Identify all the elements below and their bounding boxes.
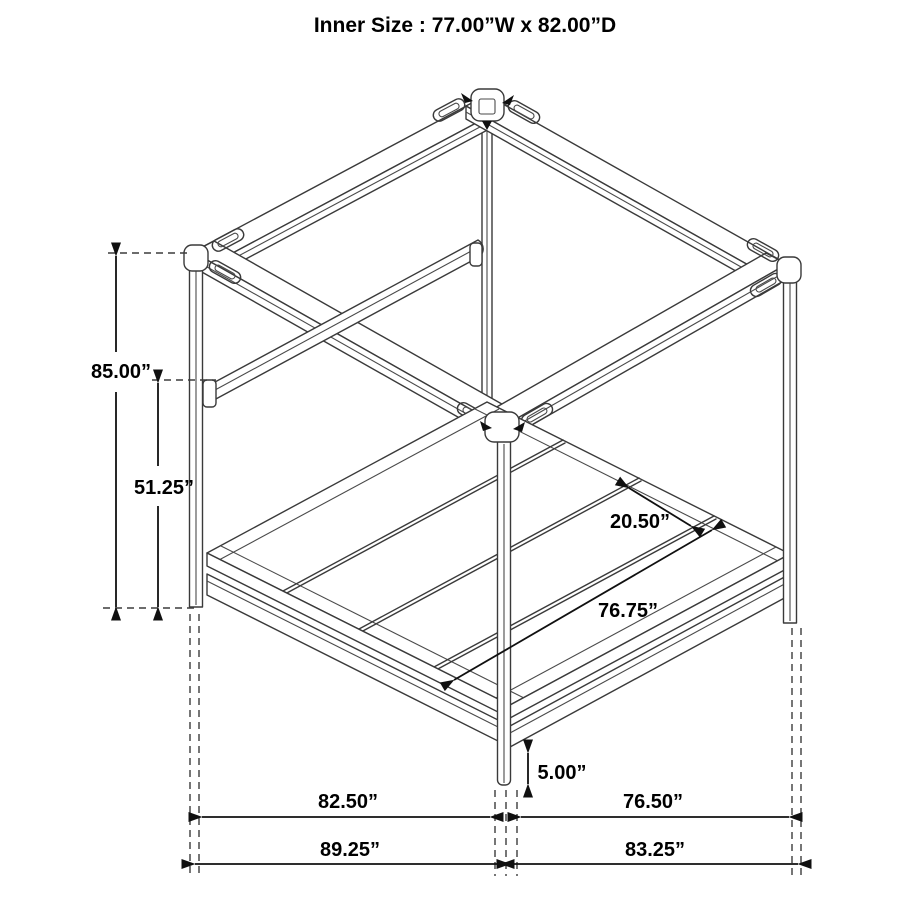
dim-slat-length: 76.75”: [598, 600, 658, 622]
dim-post-height: 85.00”: [91, 361, 151, 383]
bed-frame-diagram: Inner Size : 77.00”W x 82.00”D 85.00” 51…: [0, 0, 900, 900]
dim-floor-clearance: 5.00”: [538, 762, 587, 784]
dim-width-inner: 76.50”: [623, 791, 683, 813]
rail-hook-bracket-back: [470, 243, 482, 266]
canopy-slot-holes: [207, 97, 783, 429]
dim-width-outer: 83.25”: [625, 839, 685, 861]
dim-upper-rail-height: 51.25”: [134, 477, 194, 499]
dim-depth-inner: 82.50”: [318, 791, 378, 813]
diagram-title: Inner Size : 77.00”W x 82.00”D: [314, 14, 616, 37]
rail-hook-bracket: [203, 380, 216, 407]
dim-slat-panel-width: 20.50”: [610, 511, 670, 533]
dim-depth-outer: 89.25”: [320, 839, 380, 861]
